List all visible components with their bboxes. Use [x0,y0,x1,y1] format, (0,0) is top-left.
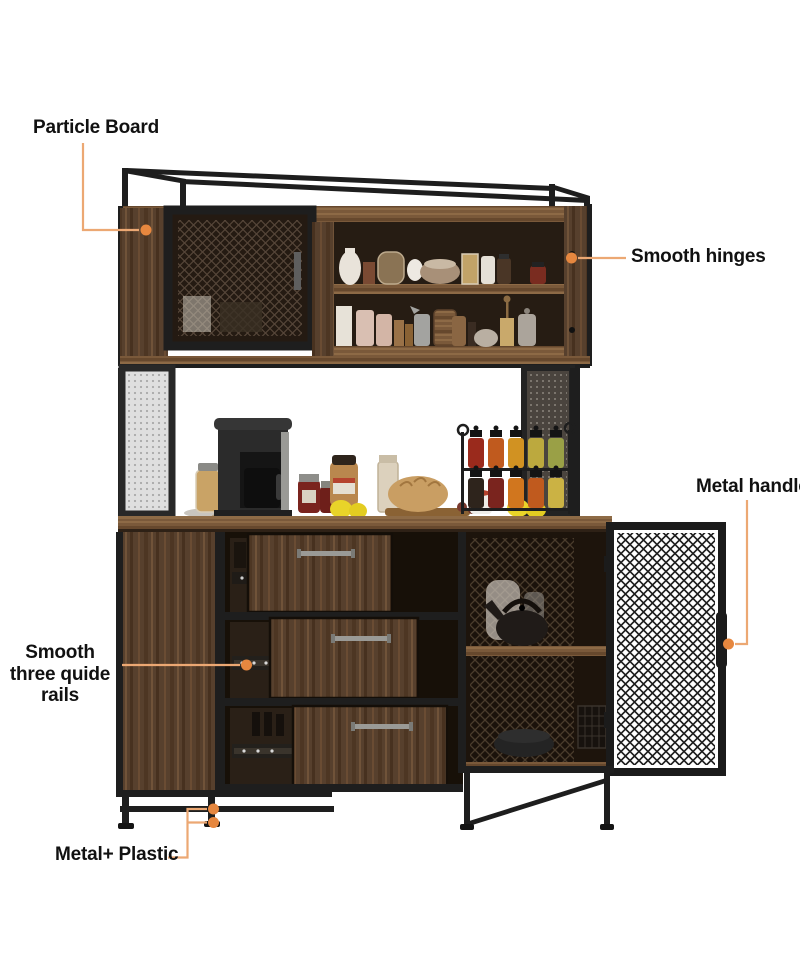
callout-label-metal-handle: Metal handle [696,476,800,498]
callout-lines [0,0,800,977]
callout-label-particle-board: Particle Board [33,117,159,139]
product-feature-diagram: Particle Board Smooth hinges Metal handl… [0,0,800,977]
callout-dot-guide-rails [241,660,252,671]
callout-dot-metal-plastic-1 [208,804,219,815]
callout-dot-particle-board [141,225,152,236]
callout-dot-metal-handle [723,639,734,650]
callout-dot-smooth-hinges [566,253,577,264]
callout-label-guide-rails: Smooth three quide rails [0,642,120,707]
callout-dot-metal-plastic-2 [208,817,219,828]
smooth-hinges-text: Smooth hinges [631,246,766,267]
leader-line-metal-handle [735,500,747,644]
callout-label-smooth-hinges: Smooth hinges [631,246,766,268]
metal-plastic-text: Metal+ Plastic [55,844,178,865]
guide-rails-text: Smooth three quide rails [10,642,110,706]
particle-board-text: Particle Board [33,117,159,138]
metal-handle-text: Metal handle [696,476,800,497]
leader-line-particle-board [83,143,139,230]
callout-label-metal-plastic: Metal+ Plastic [55,844,178,866]
